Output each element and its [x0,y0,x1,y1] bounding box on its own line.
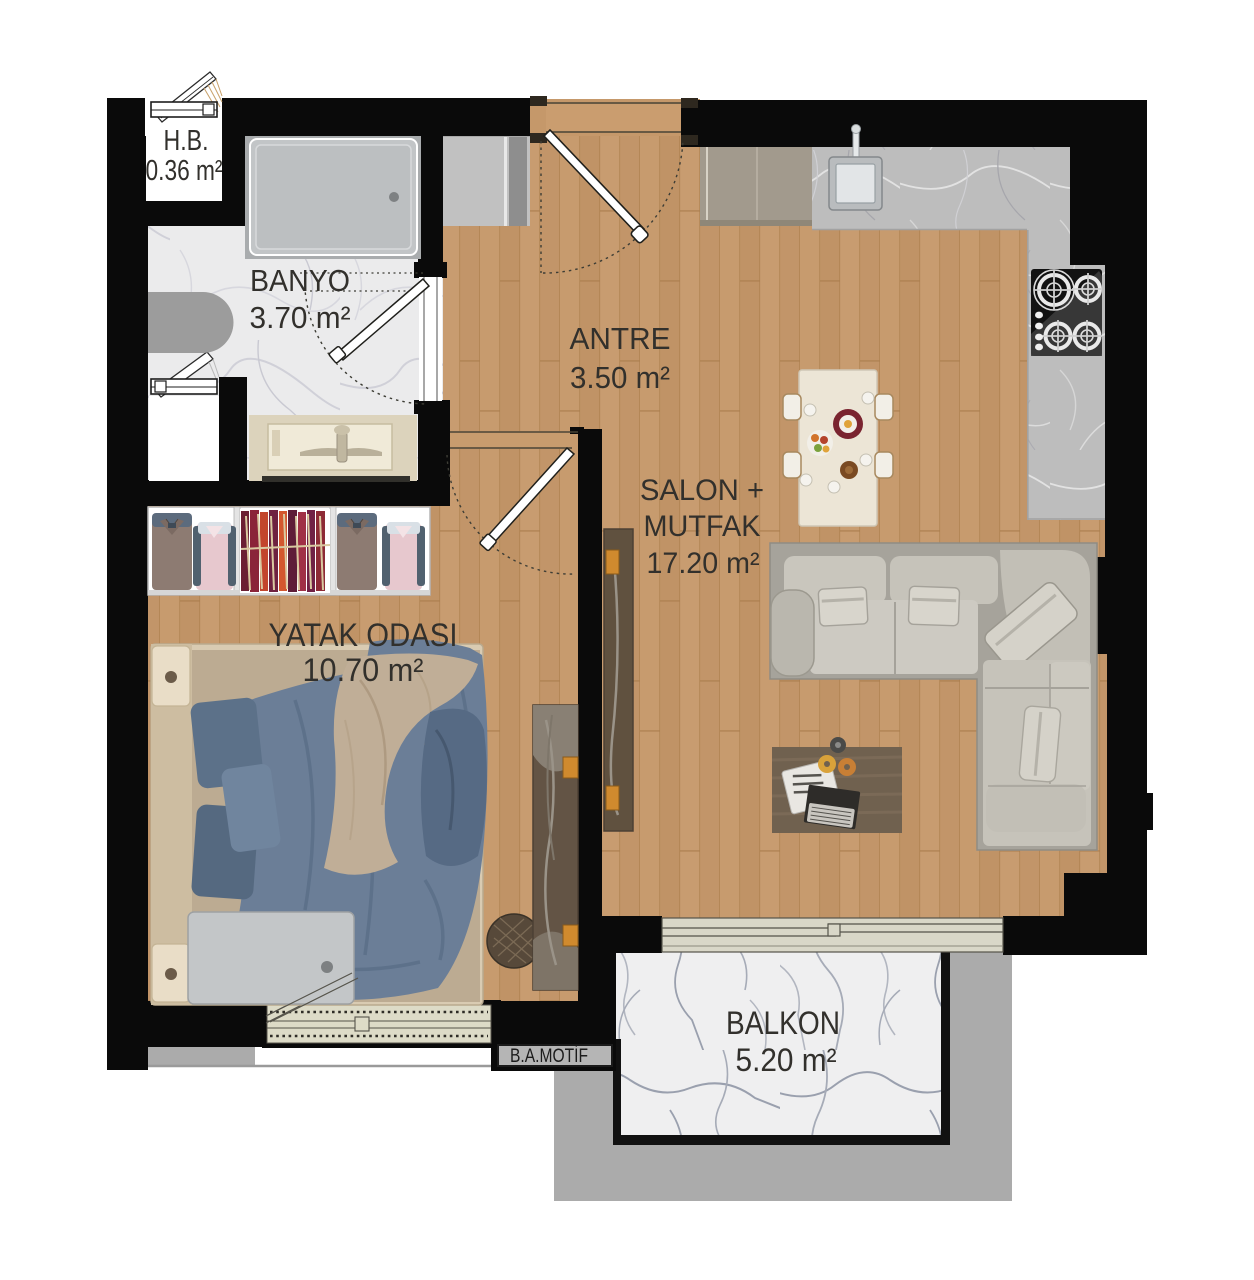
svg-text:0.36 m²: 0.36 m² [146,155,223,187]
svg-text:H.B.: H.B. [164,125,209,157]
svg-text:5.20 m²: 5.20 m² [736,1042,837,1078]
svg-text:SALON +: SALON + [640,474,764,507]
svg-text:BALKON: BALKON [726,1005,840,1041]
svg-text:17.20 m²: 17.20 m² [647,547,760,580]
svg-text:10.70 m²: 10.70 m² [303,652,424,688]
svg-text:3.70 m²: 3.70 m² [250,300,351,335]
svg-text:ANTRE: ANTRE [570,321,671,356]
svg-text:MUTFAK: MUTFAK [644,510,761,543]
svg-text:BANYO: BANYO [250,263,350,298]
svg-text:B.A.MOTİF: B.A.MOTİF [510,1046,588,1067]
svg-text:YATAK ODASI: YATAK ODASI [269,617,458,653]
svg-text:3.50 m²: 3.50 m² [570,360,670,395]
